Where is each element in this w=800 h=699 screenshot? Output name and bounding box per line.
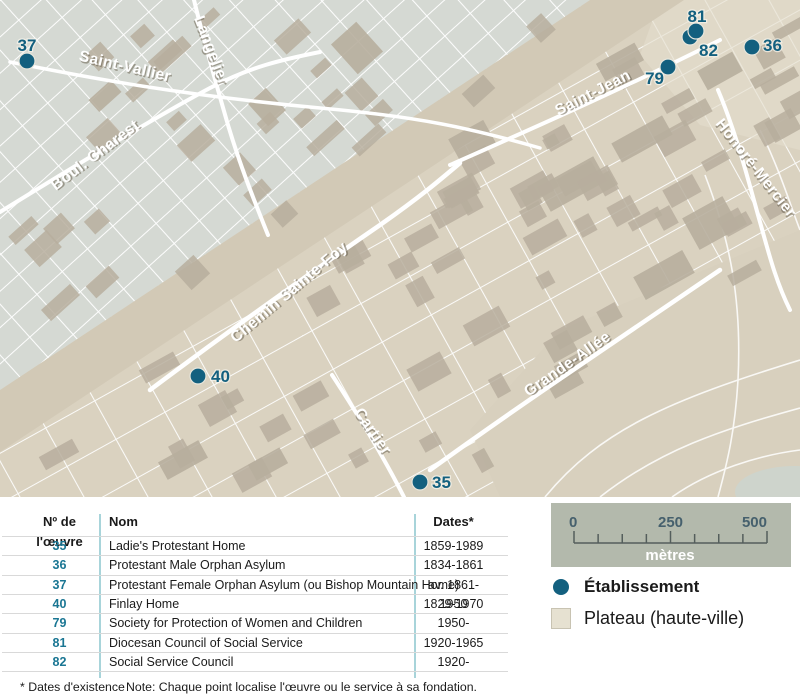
footnote: * Dates d'existence Note: Chaque point l… [0,680,545,696]
establishment-number-37: 37 [18,36,37,55]
cell-nom: Diocesan Council of Social Service [109,634,409,653]
establishment-dot-36 [744,39,760,55]
cell-num: 35 [20,537,99,556]
cell-num: 36 [20,556,99,575]
legend-label: Plateau (haute-ville) [584,608,744,629]
scale-tick-label: 0 [569,514,577,531]
legend-item: Établissement [551,577,799,597]
column-header-num: Nº de l'œuvre [20,512,99,532]
footnote-dates: * Dates d'existence [20,680,125,694]
establishment-number-79: 79 [645,69,664,88]
scale-ticks: 0250500 [569,514,767,543]
table-row: 79Society for Protection of Women and Ch… [0,614,512,633]
cell-nom: Society for Protection of Women and Chil… [109,614,409,633]
establishment-number-82: 82 [699,41,718,60]
table-row: 82Social Service Council1920- [0,653,512,672]
establishment-number-81: 81 [688,7,707,26]
scale-unit-label: mètres [645,547,694,564]
cell-dates: 1920- [415,653,492,672]
map-legend: ÉtablissementPlateau (haute-ville) [551,577,799,640]
cell-dates: 1834-1861 [415,556,492,575]
cell-dates: 1829-1970 [415,595,492,614]
cell-nom: Protestant Male Orphan Asylum [109,556,409,575]
map: Saint-VallierSaint-VallierLangelierLange… [0,0,800,497]
legend-item: Plateau (haute-ville) [551,608,799,629]
scale-bar: 0250500 mètres [551,503,791,567]
column-header-dates: Dates* [415,512,492,532]
info-panel: Nº de l'œuvre Nom Dates* 35Ladie's Prote… [0,497,800,699]
table-row: 40Finlay Home1829-1970 [0,595,512,614]
table-row: 37Protestant Female Orphan Asylum (ou Bi… [0,576,512,595]
establishment-number-35: 35 [432,473,451,492]
cell-num: 81 [20,634,99,653]
cell-nom: Finlay Home [109,595,409,614]
establishment-swatch-icon [553,579,569,595]
city-map: Saint-VallierSaint-VallierLangelierLange… [0,0,800,497]
cell-dates: 1950- [415,614,492,633]
scale-tick-label: 500 [742,514,767,531]
footnote-note: Note: Chaque point localise l'œuvre ou l… [126,680,477,694]
table-row: 36Protestant Male Orphan Asylum1834-1861 [0,556,512,575]
cell-dates: 1920-1965 [415,634,492,653]
cell-num: 79 [20,614,99,633]
column-header-name: Nom [109,512,409,532]
cell-dates: 1859-1989 [415,537,492,556]
scale-tick-label: 250 [658,514,683,531]
cell-num: 82 [20,653,99,672]
establishment-dot-35 [412,474,428,490]
cell-num: 40 [20,595,99,614]
establishment-number-36: 36 [763,36,782,55]
cell-nom: Ladie's Protestant Home [109,537,409,556]
table-row: 35Ladie's Protestant Home1859-1989 [0,537,512,556]
cell-num: 37 [20,576,99,595]
plateau-swatch-icon [551,608,571,629]
table-row: 81Diocesan Council of Social Service1920… [0,634,512,653]
cell-nom: Protestant Female Orphan Asylum (ou Bish… [109,576,409,595]
establishment-dot-37 [19,53,35,69]
establishment-dot-40 [190,368,206,384]
establishment-number-40: 40 [211,367,230,386]
cell-nom: Social Service Council [109,653,409,672]
legend-label: Établissement [584,577,699,597]
